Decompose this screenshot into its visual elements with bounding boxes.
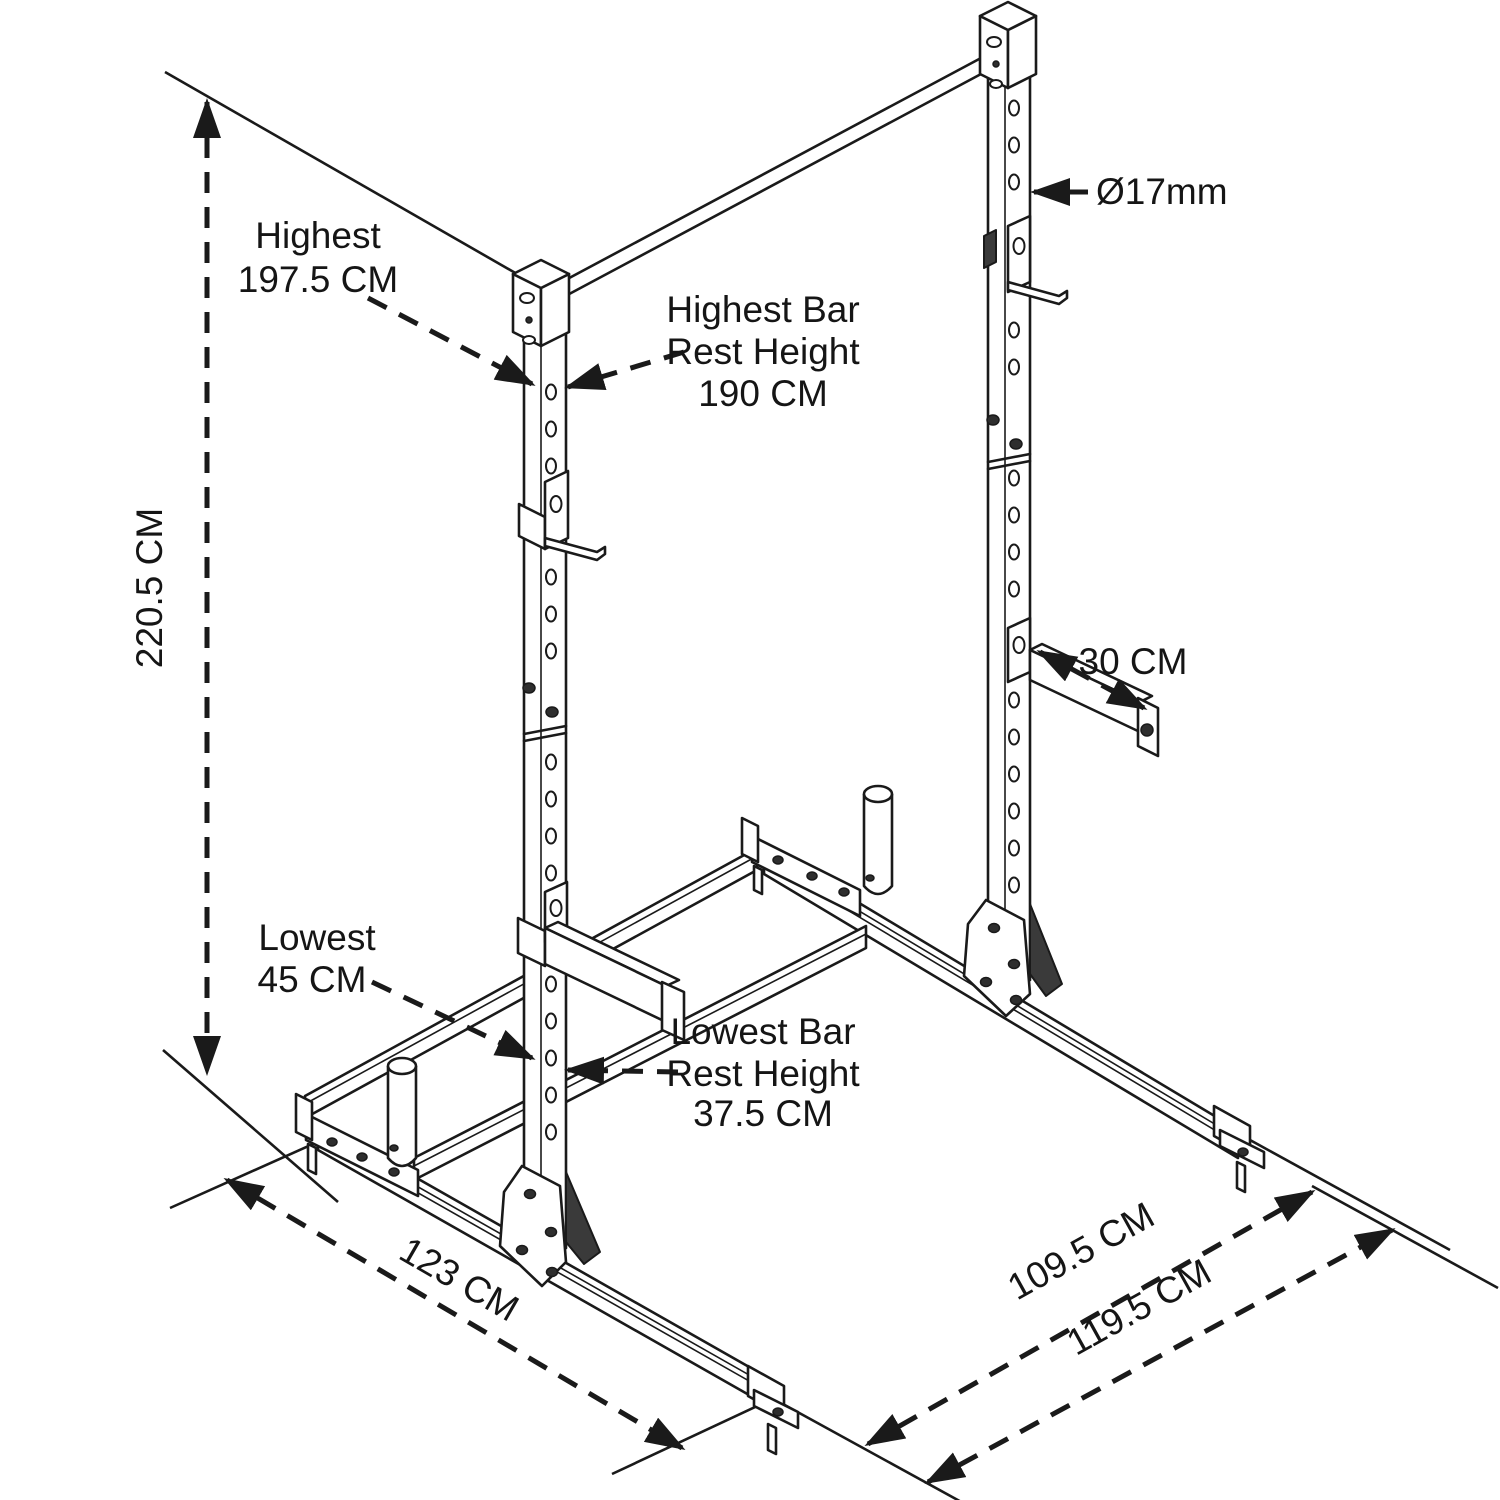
top-cap-left bbox=[513, 260, 569, 346]
adjustment-hole bbox=[1009, 138, 1019, 153]
adjustment-hole bbox=[546, 1125, 556, 1140]
label-highest-1: Highest bbox=[255, 215, 381, 256]
adjustment-hole bbox=[1009, 360, 1019, 375]
label-hole-diameter: Ø17mm bbox=[1096, 171, 1228, 212]
pullup-bar bbox=[558, 50, 996, 300]
adjustment-hole bbox=[546, 1051, 556, 1066]
label-spotter-arm: 30 CM bbox=[1079, 641, 1188, 682]
label-lowest-bar-3: 37.5 CM bbox=[693, 1093, 833, 1134]
adjustment-hole bbox=[1009, 508, 1019, 523]
adjustment-hole bbox=[1009, 471, 1019, 486]
adjustment-hole bbox=[1009, 582, 1019, 597]
right-upright bbox=[987, 70, 1030, 980]
plate-holder-peg-left bbox=[388, 1058, 416, 1166]
adjustment-hole bbox=[1009, 730, 1019, 745]
label-total-height: 220.5 CM bbox=[129, 508, 170, 668]
gusset-left bbox=[500, 1166, 600, 1286]
adjustment-hole bbox=[546, 1088, 556, 1103]
adjustment-hole bbox=[546, 607, 556, 622]
dim-base-width-outer bbox=[928, 1230, 1392, 1482]
adjustment-hole bbox=[546, 422, 556, 437]
rear-right-bracket bbox=[742, 818, 860, 916]
adjustment-hole bbox=[1009, 804, 1019, 819]
label-lowest-2: 45 CM bbox=[258, 959, 367, 1000]
adjustment-hole bbox=[1009, 841, 1019, 856]
label-highest-bar-3: 190 CM bbox=[698, 373, 828, 414]
adjustment-hole bbox=[1009, 693, 1019, 708]
adjustment-hole bbox=[1009, 323, 1019, 338]
left-upright bbox=[523, 330, 566, 1248]
adjustment-hole bbox=[546, 866, 556, 881]
squat-rack-dimension-diagram: 220.5 CM Highest 197.5 CM Highest Bar Re… bbox=[0, 0, 1500, 1500]
adjustment-hole bbox=[546, 570, 556, 585]
top-cap-right bbox=[980, 2, 1036, 88]
labels: 220.5 CM Highest 197.5 CM Highest Bar Re… bbox=[129, 171, 1228, 1363]
adjustment-hole bbox=[546, 829, 556, 844]
plate-holder-peg-right bbox=[864, 786, 892, 894]
adjustment-hole bbox=[546, 644, 556, 659]
leader-highest bbox=[368, 298, 532, 384]
adjustment-hole bbox=[1009, 545, 1019, 560]
left-foot-pin bbox=[768, 1424, 776, 1454]
label-highest-bar-1: Highest Bar bbox=[666, 289, 859, 330]
adjustment-hole bbox=[546, 792, 556, 807]
label-lowest-1: Lowest bbox=[258, 917, 376, 958]
right-foot-pin bbox=[1237, 1162, 1245, 1192]
adjustment-hole bbox=[546, 977, 556, 992]
adjustment-hole bbox=[546, 755, 556, 770]
adjustment-hole bbox=[1009, 878, 1019, 893]
label-lowest-bar-1: Lowest Bar bbox=[670, 1011, 855, 1052]
adjustment-hole bbox=[1009, 101, 1019, 116]
label-lowest-bar-2: Rest Height bbox=[666, 1053, 860, 1094]
label-highest-2: 197.5 CM bbox=[238, 259, 398, 300]
diagram-page: 220.5 CM Highest 197.5 CM Highest Bar Re… bbox=[0, 0, 1500, 1500]
adjustment-hole bbox=[546, 385, 556, 400]
adjustment-hole bbox=[1009, 175, 1019, 190]
adjustment-hole bbox=[546, 1014, 556, 1029]
adjustment-hole bbox=[1009, 767, 1019, 782]
adjustment-hole bbox=[546, 459, 556, 474]
label-highest-bar-2: Rest Height bbox=[666, 331, 860, 372]
